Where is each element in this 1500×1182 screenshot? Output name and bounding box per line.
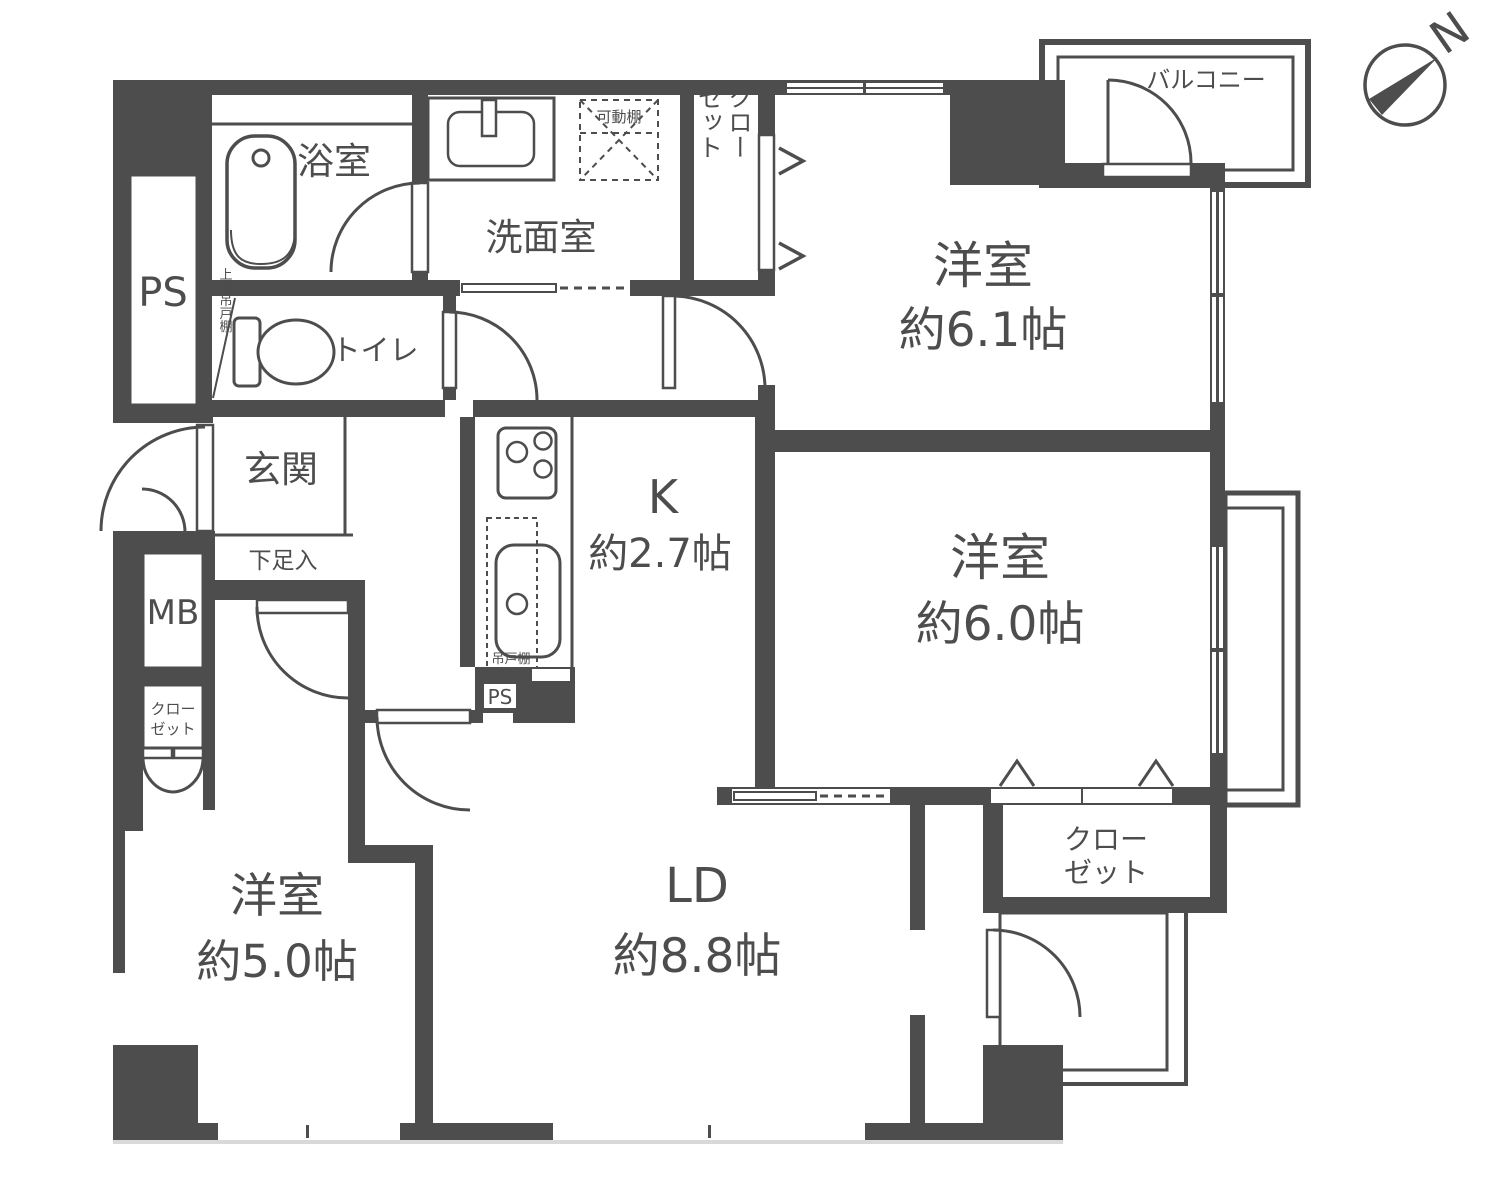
label-bedroom50-size: 約5.0帖 bbox=[196, 935, 358, 988]
label-closet-left-l1: クロー bbox=[150, 700, 195, 718]
label-kitchen-name: K bbox=[648, 470, 680, 524]
label-shoe-box: 下足入 bbox=[249, 548, 318, 574]
label-bedroom61-size: 約6.1帖 bbox=[899, 303, 1068, 358]
label-movable-shelf: 可動棚 bbox=[596, 108, 641, 126]
label-kitchen-size: 約2.7帖 bbox=[588, 531, 732, 577]
floorplan-svg: N PS 浴室 洗面室 可動棚 クロー ゼット 上部吊戸棚 トイレ 玄関 下足入… bbox=[0, 0, 1500, 1182]
bottom-shadow bbox=[113, 1140, 1063, 1144]
label-closet-top-col1: クロー bbox=[725, 85, 754, 160]
compass: N bbox=[1365, 1, 1479, 125]
label-hanging-cupboard: 吊戸棚 bbox=[491, 652, 530, 667]
service-balcony-inner bbox=[1225, 508, 1283, 790]
label-mb: MB bbox=[147, 593, 200, 633]
closet-arrow-icons bbox=[779, 148, 803, 269]
stove-burner bbox=[507, 442, 527, 462]
label-bath: 浴室 bbox=[297, 140, 371, 183]
label-genkan: 玄関 bbox=[244, 448, 318, 491]
label-bedroom61-name: 洋室 bbox=[933, 237, 1033, 295]
label-bedroom50-name: 洋室 bbox=[230, 869, 324, 924]
label-ps-kitchen: PS bbox=[488, 685, 513, 709]
label-closet-left-l2: ゼット bbox=[150, 720, 195, 738]
label-bedroom60-name: 洋室 bbox=[950, 529, 1050, 587]
bathtub-drain-icon bbox=[253, 150, 269, 166]
stove-burner bbox=[535, 461, 552, 478]
vanity-faucet-icon bbox=[482, 100, 496, 136]
label-bedroom60-size: 約6.0帖 bbox=[916, 597, 1085, 652]
bifold-marks bbox=[1000, 761, 1173, 786]
toilet-bowl bbox=[258, 320, 334, 384]
label-upper-shelf: 上部吊戸棚 bbox=[217, 268, 233, 333]
toilet-tank bbox=[234, 318, 260, 386]
kitchen-sink bbox=[496, 545, 560, 657]
label-ld-name: LD bbox=[665, 858, 729, 914]
label-closet-top-col2: ゼット bbox=[695, 85, 724, 160]
label-washroom: 洗面室 bbox=[486, 216, 597, 259]
service-balcony-outer bbox=[1225, 493, 1298, 805]
labels: PS 浴室 洗面室 可動棚 クロー ゼット 上部吊戸棚 トイレ 玄関 下足入 M… bbox=[138, 66, 1266, 988]
label-closet-br-l1: クロー bbox=[1064, 823, 1148, 856]
label-balcony: バルコニー bbox=[1146, 66, 1266, 94]
label-ld-size: 約8.8帖 bbox=[613, 929, 782, 984]
label-ps-top: PS bbox=[138, 270, 188, 316]
floorplan-page: N PS 浴室 洗面室 可動棚 クロー ゼット 上部吊戸棚 トイレ 玄関 下足入… bbox=[0, 0, 1500, 1182]
label-toilet: トイレ bbox=[331, 333, 418, 367]
stove-burner bbox=[535, 433, 552, 450]
kitchen-sink-drain-icon bbox=[507, 594, 527, 614]
label-closet-br-l2: ゼット bbox=[1064, 856, 1148, 889]
